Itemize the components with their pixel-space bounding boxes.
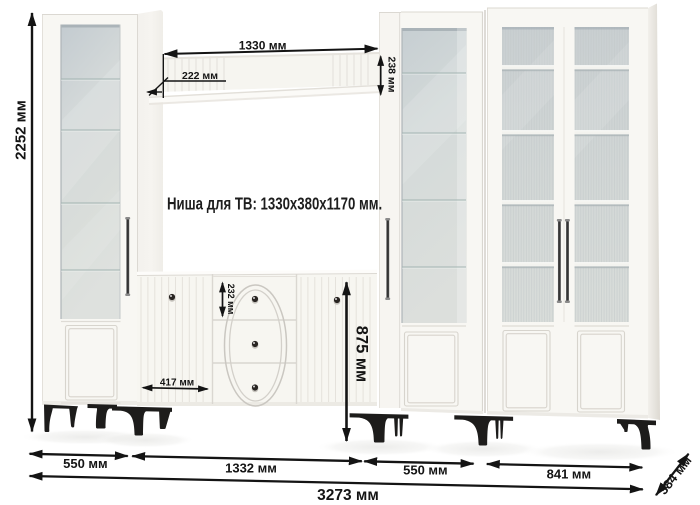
svg-text:1332 мм: 1332 мм — [225, 461, 277, 476]
svg-text:417 мм: 417 мм — [160, 378, 194, 389]
svg-text:550 мм: 550 мм — [403, 463, 448, 478]
svg-text:550 мм: 550 мм — [63, 456, 108, 471]
svg-text:3273 мм: 3273 мм — [317, 487, 379, 504]
svg-text:Ниша для ТВ: 1330x380x1170 мм.: Ниша для ТВ: 1330x380x1170 мм. — [167, 195, 382, 214]
svg-text:2252 мм: 2252 мм — [13, 100, 30, 160]
svg-text:875 мм: 875 мм — [353, 326, 371, 383]
svg-text:1330 мм: 1330 мм — [239, 39, 287, 53]
svg-text:232 мм: 232 мм — [226, 284, 236, 315]
svg-text:238 мм: 238 мм — [386, 57, 398, 93]
svg-text:222 мм: 222 мм — [182, 70, 218, 82]
svg-text:841 мм: 841 мм — [547, 467, 592, 482]
